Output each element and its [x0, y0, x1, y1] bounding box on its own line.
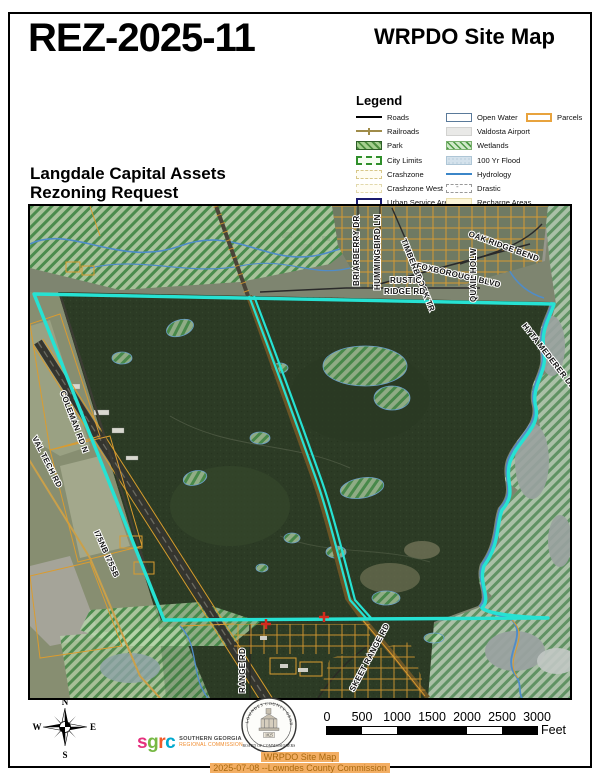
scale-tick: 2500 [488, 710, 516, 724]
sgrc-letter-c: c [165, 732, 175, 753]
sgrc-org-line2: REGIONAL COMMISSION [179, 742, 243, 748]
scale-unit-label: Feet [541, 723, 566, 737]
legend-column-2: Open Water Valdosta Airport Wetlands 100… [446, 110, 531, 210]
legend-label: Open Water [477, 113, 518, 122]
map-svg: COLEMAN RD N VAL TECH RD I75NB I75SB RAN… [30, 206, 570, 698]
legend-title: Legend [356, 93, 592, 108]
scale-bar-segments [327, 727, 537, 734]
legend-item-park: Park [356, 139, 453, 153]
compass-w-label: W [33, 722, 42, 732]
case-number-title: REZ-2025-11 [28, 16, 255, 61]
request-line1: Langdale Capital Assets [30, 164, 226, 183]
legend-label: City Limits [387, 156, 422, 165]
parcels-swatch [526, 113, 552, 122]
legend-label: Hydrology [477, 170, 511, 179]
footer-map-name: WRPDO Site Map [261, 752, 340, 762]
legend-label: Wetlands [477, 141, 509, 150]
scale-tick: 1000 [383, 710, 411, 724]
legend-column-1: Roads Railroads Park City Limits Crashzo… [356, 110, 453, 210]
scale-tick: 3000 [523, 710, 551, 724]
map-label-rustic-line1: RUSTIC [390, 276, 422, 285]
airport-swatch [446, 127, 472, 136]
open-water-swatch [446, 113, 472, 122]
sgrc-logo: sgrc SOUTHERN GEORGIA REGIONAL COMMISSIO… [137, 734, 243, 751]
compass-star [43, 708, 87, 746]
city-limits-swatch [356, 156, 382, 165]
legend-item-drastic: Drastic [446, 181, 531, 195]
legend-label: Crashzone [387, 170, 424, 179]
legend-item-open-water: Open Water [446, 110, 531, 124]
seal-arc-bottom-text: BOARD OF COMMISSIONERS [243, 744, 296, 748]
legend-label: 100 Yr Flood [477, 156, 520, 165]
site-map: COLEMAN RD N VAL TECH RD I75NB I75SB RAN… [28, 204, 572, 700]
legend-column-3: Parcels [526, 110, 582, 124]
legend-item-hydrology: Hydrology [446, 167, 531, 181]
sgrc-letter-g: g [147, 732, 158, 753]
map-label-hummingbird-ln: HUMMINGBIRD LN [373, 214, 382, 290]
scale-tick: 0 [324, 710, 331, 724]
sgrc-letter-s: s [137, 732, 147, 753]
scale-ticks: 0 500 1000 1500 2000 2500 3000 [327, 710, 577, 725]
flood-swatch [446, 156, 472, 165]
legend-label: Valdosta Airport [477, 127, 530, 136]
railroads-line-swatch [356, 130, 382, 132]
legend-item-roads: Roads [356, 110, 453, 124]
scale-tick: 1500 [418, 710, 446, 724]
county-seal: LOWNDES COUNTY GEORGIA 1825 BOARD OF COM… [238, 694, 300, 758]
compass-n-label: N [62, 697, 69, 707]
legend-label: Crashzone West [387, 184, 443, 193]
crashzone-swatch [356, 170, 382, 179]
rezoning-request-title: Langdale Capital Assets Rezoning Request [30, 164, 226, 202]
map-label-briarberry-dr: BRIARBERRY DR [352, 215, 361, 286]
legend-item-parcels: Parcels [526, 110, 582, 124]
map-title: WRPDO Site Map [374, 24, 555, 50]
legend-label: Railroads [387, 127, 419, 136]
wetlands-swatch [446, 141, 472, 150]
legend: Legend Roads Railroads Park City Limits … [356, 93, 592, 205]
legend-label: Drastic [477, 184, 501, 193]
scale-bar: 0 500 1000 1500 2000 2500 3000 Feet [327, 710, 577, 734]
footer-date-commission: 2025-07-08 --Lowndes County Commission [210, 763, 390, 773]
footer-line2: 2025-07-08 --Lowndes County Commission [0, 763, 600, 773]
scale-tick: 500 [352, 710, 373, 724]
legend-item-city-limits: City Limits [356, 153, 453, 167]
drastic-swatch [446, 184, 472, 193]
sgrc-wordmark: sgrc [137, 734, 175, 751]
clearing [360, 563, 420, 593]
scale-tick: 2000 [453, 710, 481, 724]
legend-item-railroads: Railroads [356, 124, 453, 138]
legend-item-crashzone: Crashzone [356, 167, 453, 181]
legend-columns: Roads Railroads Park City Limits Crashzo… [356, 110, 592, 206]
footer-line1: WRPDO Site Map [0, 752, 600, 762]
legend-item-wetlands: Wetlands [446, 139, 531, 153]
hydrology-line-swatch [446, 173, 472, 175]
park-swatch [356, 141, 382, 150]
request-line2: Rezoning Request [30, 183, 226, 202]
legend-item-100yr-flood: 100 Yr Flood [446, 153, 531, 167]
crashzone-west-swatch [356, 184, 382, 193]
map-label-range-rd: RANGE RD [238, 648, 247, 693]
compass-e-label: E [90, 722, 96, 732]
legend-label: Roads [387, 113, 409, 122]
pond-southwest [100, 653, 160, 683]
seal-year: 1825 [265, 733, 273, 738]
legend-item-valdosta-airport: Valdosta Airport [446, 124, 531, 138]
map-label-rustic-line2: RIDGE RD [384, 287, 426, 296]
roads-line-swatch [356, 116, 382, 118]
map-label-quail-holw: QUAIL HOLW [469, 248, 478, 302]
legend-item-crashzone-west: Crashzone West [356, 181, 453, 195]
legend-label: Park [387, 141, 403, 150]
legend-label: Parcels [557, 113, 582, 122]
